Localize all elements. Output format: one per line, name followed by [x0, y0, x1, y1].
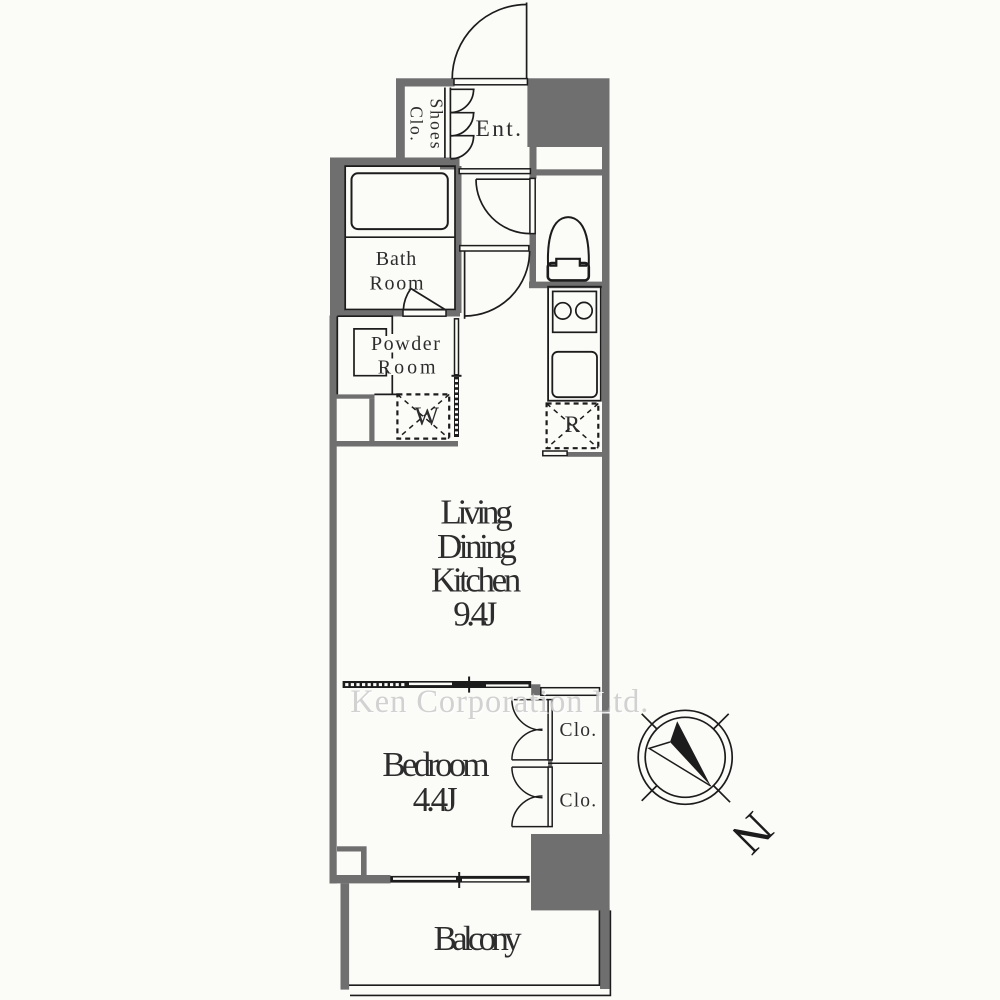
svg-text:Shoes: Shoes: [427, 99, 447, 149]
svg-text:Room: Room: [378, 356, 436, 378]
svg-text:Clo.: Clo.: [407, 106, 427, 141]
svg-text:Clo.: Clo.: [560, 720, 597, 741]
svg-text:Room: Room: [370, 273, 424, 295]
svg-text:Clo.: Clo.: [560, 791, 597, 812]
svg-text:Living: Living: [440, 492, 512, 531]
svg-text:R: R: [565, 412, 581, 437]
svg-text:9.4J: 9.4J: [453, 594, 497, 633]
svg-text:Bath: Bath: [376, 248, 417, 270]
svg-text:Ken Corporation Ltd.: Ken Corporation Ltd.: [350, 684, 648, 720]
svg-text:Ent.: Ent.: [476, 116, 522, 142]
svg-text:W: W: [414, 402, 439, 431]
svg-text:Bedroom: Bedroom: [382, 745, 489, 784]
svg-text:Powder: Powder: [371, 333, 440, 355]
svg-text:Balcony: Balcony: [434, 919, 522, 958]
svg-text:4.4J: 4.4J: [413, 780, 458, 819]
